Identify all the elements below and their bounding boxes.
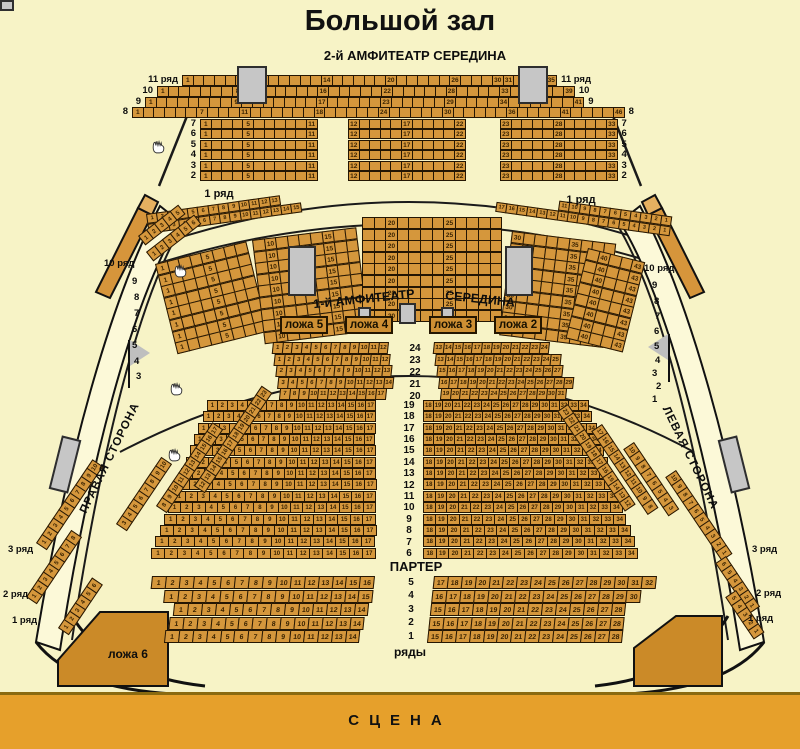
map-label: 5 — [400, 578, 422, 589]
seat[interactable]: 22 — [454, 161, 466, 171]
section-parter-title: ПАРТЕР — [378, 560, 454, 574]
seat[interactable]: 17 — [362, 514, 375, 525]
row-label: 11 ряд — [148, 75, 178, 85]
map-label: 3 ряд — [8, 545, 33, 555]
seat-row: 41511 — [200, 150, 318, 160]
seat-row: 2328337 — [500, 119, 618, 129]
seat-row: 2328332 — [500, 171, 618, 181]
seat-row: 12345678910111213141516 — [151, 576, 376, 589]
seat-row: 1516171819202122232425262728 — [430, 603, 627, 616]
seat[interactable]: 15 — [336, 548, 350, 559]
seat[interactable]: 2 — [173, 525, 187, 536]
seat[interactable]: 14 — [353, 603, 369, 616]
seat[interactable]: 7 — [236, 525, 250, 536]
seat-row: 121722 — [348, 119, 466, 129]
seat[interactable]: 28 — [610, 603, 626, 616]
seat[interactable]: 14 — [323, 536, 337, 547]
seat-row: 121722 — [348, 140, 466, 150]
box-ложа-4[interactable]: ложа 4 — [345, 316, 393, 334]
seat[interactable] — [490, 263, 503, 275]
map-label: 22 — [402, 368, 428, 379]
seat-row: 1819202122232425262728293031323334 — [423, 548, 638, 559]
seat-row: 1234567891011121314151617 — [155, 536, 375, 547]
seat[interactable]: 17 — [365, 411, 376, 422]
page-title: Большой зал — [0, 5, 800, 38]
arc-row1-label-left: 1 ряд — [196, 189, 242, 201]
seat[interactable]: 28 — [547, 536, 560, 547]
seat[interactable]: 26 — [524, 548, 538, 559]
seat[interactable]: 15 — [337, 514, 350, 525]
box-ложа-5[interactable]: ложа 5 — [280, 316, 328, 334]
row-label: 9 — [588, 97, 593, 107]
hand-cursor-icon — [168, 380, 185, 397]
seat[interactable]: 34 — [581, 411, 592, 422]
seat[interactable]: 1 — [155, 536, 169, 547]
map-label: 18 — [398, 412, 420, 423]
seat[interactable]: 10 — [276, 514, 289, 525]
seat-row: 123456789101112 — [272, 342, 389, 354]
seat[interactable]: 7 — [238, 514, 251, 525]
seat[interactable]: 9 — [258, 536, 272, 547]
seat[interactable]: 33 — [606, 119, 618, 129]
seat-row: 121722 — [348, 161, 466, 171]
map-label: 4 — [134, 357, 139, 367]
seat[interactable]: 8 — [243, 548, 257, 559]
seat[interactable]: 33 — [612, 548, 626, 559]
map-label: 4 — [655, 356, 660, 366]
stage-label: СЦЕНА — [348, 712, 451, 749]
seat[interactable]: 28 — [609, 617, 625, 630]
seat[interactable]: 32 — [596, 536, 609, 547]
box-ложа-2[interactable]: ложа 2 — [494, 316, 542, 334]
map-label: 5 — [654, 342, 659, 352]
seat[interactable]: 22 — [454, 129, 466, 139]
seat[interactable]: 25 — [511, 548, 525, 559]
seat-row: 1819202122232425262728293031323334 — [423, 514, 626, 525]
seat-row: 131415161718192021222324 — [433, 342, 550, 354]
seat[interactable]: 27 — [536, 548, 550, 559]
map-label: 4 — [400, 591, 422, 602]
seat[interactable]: 12 — [377, 342, 389, 354]
seat[interactable]: 12 — [296, 548, 310, 559]
seat[interactable]: 17 — [362, 548, 376, 559]
seat-row: 71511 — [200, 119, 318, 129]
map-label: 3 ряд — [752, 545, 777, 555]
map-label: 7 — [398, 538, 420, 549]
map-label: 1 ряд — [748, 614, 773, 624]
row-label: 4 — [191, 150, 196, 160]
map-label: 3 — [652, 369, 657, 379]
map-label: 2 ряд — [3, 590, 28, 600]
seat[interactable]: 13 — [310, 536, 324, 547]
seat[interactable]: 10 — [271, 536, 285, 547]
map-label: 5 — [132, 341, 137, 351]
seat[interactable]: 30 — [626, 590, 642, 603]
seat-row: 1516171819202122232425262728 — [428, 617, 625, 630]
seat[interactable]: 17 — [363, 491, 376, 502]
seat[interactable]: 14 — [325, 514, 338, 525]
seat[interactable]: 3 — [177, 548, 191, 559]
hand-cursor-icon — [166, 446, 183, 463]
seat[interactable]: 20 — [448, 548, 462, 559]
seat[interactable]: 14 — [325, 525, 339, 536]
seat[interactable]: 4 — [198, 525, 212, 536]
map-label: 9 — [398, 515, 420, 526]
seat[interactable]: 14 — [383, 377, 395, 389]
seat[interactable]: 33 — [606, 161, 618, 171]
seat-row: 121722 — [348, 150, 466, 160]
seat[interactable]: 14 — [345, 630, 361, 643]
row-label: 8 — [123, 107, 128, 117]
seat[interactable]: 11 — [306, 161, 318, 171]
map-label: 3 — [400, 605, 422, 616]
section-amph2-title: 2-й АМФИТЕАТР СЕРЕДИНА — [250, 49, 580, 63]
seat[interactable]: 25 — [550, 354, 562, 366]
seat[interactable]: 11 — [306, 171, 318, 181]
seat[interactable]: 18 — [423, 548, 437, 559]
map-label: 1 — [400, 632, 422, 643]
map-label: 8 — [654, 297, 659, 307]
rows-caption: ряды — [380, 646, 440, 659]
seat[interactable]: 8 — [245, 536, 259, 547]
seat[interactable] — [490, 275, 503, 287]
seat[interactable]: 4 — [194, 536, 208, 547]
seat[interactable]: 15 — [338, 525, 352, 536]
flag-pole — [668, 334, 670, 382]
seat[interactable]: 1 — [164, 514, 177, 525]
box-ложа-3[interactable]: ложа 3 — [429, 316, 477, 334]
seat-row: 123456789101112 — [274, 354, 391, 366]
seat[interactable]: 12 — [297, 536, 311, 547]
seat-row: 123456789101112131415 — [163, 590, 374, 603]
seat[interactable]: 15 — [358, 590, 374, 603]
seat[interactable]: 2 — [176, 514, 189, 525]
seat[interactable]: 34 — [613, 514, 626, 525]
seat[interactable]: 25 — [510, 536, 523, 547]
seat-row: 15161718192021222324252627 — [436, 365, 563, 377]
seat[interactable]: 27 — [551, 365, 563, 377]
seat[interactable]: 2 — [164, 548, 178, 559]
map-label: 12 — [398, 481, 420, 492]
seat-row: 2025 — [362, 217, 502, 229]
seat[interactable]: 22 — [454, 140, 466, 150]
seat[interactable]: 3 — [185, 525, 199, 536]
seat[interactable]: 7 — [232, 536, 246, 547]
seat[interactable]: 6 — [219, 536, 233, 547]
seat-row: 2345678910111213 — [275, 365, 392, 377]
seat-row: 1819202122232425262728293031323334 — [423, 457, 608, 468]
seat[interactable]: 31 — [584, 536, 597, 547]
seat[interactable]: 11 — [287, 525, 301, 536]
row-label: 8 — [629, 107, 634, 117]
map-label: 10 ряд — [104, 259, 134, 269]
map-label: 21 — [402, 380, 428, 391]
seat[interactable]: 34 — [625, 548, 639, 559]
seat[interactable]: 32 — [599, 548, 613, 559]
seat[interactable]: 17 — [361, 536, 375, 547]
seat[interactable]: 1 — [151, 548, 165, 559]
seat[interactable]: 17 — [364, 434, 376, 445]
seat-row: 1234567891011121314 — [173, 603, 370, 616]
seat[interactable]: 11 — [306, 150, 318, 160]
seat[interactable]: 11 — [306, 119, 318, 129]
seat-row: 1819202122232425262728293031323334 — [423, 491, 620, 502]
seat[interactable]: 9 — [257, 548, 271, 559]
map-label: 6 — [654, 327, 659, 337]
seat[interactable]: 17 — [364, 479, 377, 490]
seat[interactable]: 28 — [549, 548, 563, 559]
seat[interactable]: 30 — [572, 536, 585, 547]
seat[interactable]: 17 — [364, 423, 375, 434]
row-label: 11 ряд — [561, 75, 591, 85]
seat[interactable]: 13 — [381, 365, 393, 377]
seat[interactable]: 16 — [348, 536, 362, 547]
seat[interactable] — [490, 229, 503, 241]
seat[interactable]: 15 — [290, 202, 303, 213]
seat[interactable]: 33 — [609, 536, 622, 547]
row-label: 2 — [191, 171, 196, 181]
row-label: 10 — [142, 86, 153, 96]
seat[interactable]: 6 — [226, 514, 239, 525]
seat-row: 2025 — [362, 240, 502, 252]
seat-row: 2025 — [362, 229, 502, 241]
seat[interactable]: 28 — [608, 630, 624, 643]
map-label: 6 — [398, 549, 420, 560]
map-label: 16 — [398, 435, 420, 446]
seat[interactable]: 21 — [460, 536, 473, 547]
map-label: 7 — [134, 309, 139, 319]
seat[interactable]: 22 — [454, 171, 466, 181]
seat[interactable]: 17 — [375, 388, 387, 400]
box-lozha-6-label: ложа 6 — [96, 648, 160, 661]
seat[interactable]: 22 — [473, 536, 486, 547]
seat[interactable]: 16 — [359, 576, 375, 589]
seat[interactable]: 5 — [214, 514, 227, 525]
hand-cursor-icon — [172, 262, 189, 279]
seat[interactable]: 32 — [641, 576, 657, 589]
seat-row: 1234567891011121314151617 — [151, 548, 376, 559]
map-label: 1 ряд — [12, 616, 37, 626]
seat[interactable]: 31 — [587, 548, 601, 559]
seat-row: 2025 — [362, 252, 502, 264]
arc-row1-label-right: 1 ряд — [558, 195, 604, 207]
seat[interactable]: 3 — [189, 514, 202, 525]
seat[interactable]: 8 — [249, 525, 263, 536]
seat[interactable]: 5 — [207, 536, 221, 547]
seat[interactable]: 24 — [497, 536, 510, 547]
seat[interactable]: 12 — [300, 525, 314, 536]
map-label: 8 — [398, 526, 420, 537]
seat-row: 1819202122232425262728293031323334 — [423, 525, 631, 536]
seat[interactable]: 17 — [365, 400, 376, 411]
seat[interactable]: 22 — [454, 150, 466, 160]
seat-row: 121722 — [348, 129, 466, 139]
seat[interactable]: 2 — [168, 536, 182, 547]
seat[interactable]: 1 — [160, 525, 174, 536]
map-label: 9 — [652, 281, 657, 291]
seat-row: 61511 — [200, 129, 318, 139]
seat[interactable] — [490, 217, 503, 229]
seat[interactable]: 46 — [613, 107, 625, 118]
seat-row: 1819202122232425262728293031323334 — [423, 479, 616, 490]
seat[interactable]: 19 — [436, 548, 450, 559]
seat[interactable]: 7 — [230, 548, 244, 559]
row-label: 10 — [579, 86, 590, 96]
seat-row: 19202122232425262728293031 — [440, 388, 567, 400]
seat[interactable]: 29 — [559, 536, 572, 547]
seat[interactable]: 12 — [300, 514, 313, 525]
pillar — [505, 246, 533, 296]
seat[interactable]: 5 — [211, 525, 225, 536]
seat[interactable]: 17 — [363, 502, 376, 513]
seat-row: 817111824303641468 — [132, 107, 625, 118]
seat[interactable]: 16 — [350, 514, 363, 525]
map-label: 8 — [134, 293, 139, 303]
seat-row: 1819202122232425262728293031323334 — [423, 502, 623, 513]
seat[interactable]: 26 — [522, 536, 535, 547]
seat-row: 21511 — [200, 171, 318, 181]
map-label: 10 — [398, 503, 420, 514]
seat-row: 1234567891011121314 — [164, 630, 361, 643]
seat[interactable]: 24 — [499, 548, 513, 559]
map-label: 11 — [398, 492, 420, 503]
seat[interactable]: 6 — [223, 525, 237, 536]
seat-row: 2328334 — [500, 150, 618, 160]
seat[interactable]: 13 — [313, 514, 326, 525]
seat[interactable]: 5 — [204, 548, 218, 559]
seat[interactable]: 3 — [181, 536, 195, 547]
seat-row: 7891011121314151617 — [279, 388, 387, 400]
seat[interactable]: 10 — [270, 548, 284, 559]
pillar — [518, 66, 548, 104]
map-label: 9 — [132, 277, 137, 287]
seat[interactable]: 33 — [606, 129, 618, 139]
seat-row: 13141516171819202122232425 — [435, 354, 562, 366]
seat-row: 1516171819202122232425262728 — [427, 630, 624, 643]
seat[interactable]: 34 — [578, 400, 589, 411]
seat[interactable]: 17 — [363, 525, 377, 536]
seat[interactable]: 29 — [562, 548, 576, 559]
seat-row: 1234567891011121314151617 — [203, 411, 376, 422]
seat[interactable]: 18 — [423, 536, 436, 547]
seat[interactable] — [490, 252, 503, 264]
row-label: 4 — [622, 150, 627, 160]
map-label: 3 — [136, 372, 141, 382]
seat[interactable]: 19 — [435, 536, 448, 547]
map-label: 2 — [400, 618, 422, 629]
seat[interactable]: 27 — [535, 536, 548, 547]
seat[interactable]: 23 — [486, 548, 500, 559]
seat-row: 34567891011121314 — [277, 377, 394, 389]
seat[interactable]: 17 — [364, 445, 376, 456]
map-label: 19 — [398, 401, 420, 412]
seat-row: 2328335 — [500, 140, 618, 150]
box-right-corner-shape[interactable] — [634, 616, 722, 686]
seat[interactable]: 29 — [563, 377, 575, 389]
seat-row: 2328333 — [500, 161, 618, 171]
seat[interactable]: 33 — [606, 171, 618, 181]
seat-row: 121722 — [348, 171, 466, 181]
seat[interactable]: 17 — [363, 468, 375, 479]
seat[interactable]: 17 — [364, 457, 376, 468]
map-label: 10 ряд — [644, 264, 674, 274]
seat[interactable]: 9 — [263, 514, 276, 525]
seat-row: 1234567891011121314151617 — [164, 514, 376, 525]
seat[interactable]: 14 — [349, 617, 365, 630]
seat-row: 17181920212223242526272829303132 — [433, 576, 658, 589]
seat[interactable]: 12 — [379, 354, 391, 366]
map-label: 24 — [402, 344, 428, 355]
row-label: 9 — [136, 97, 141, 107]
seat[interactable]: 20 — [448, 536, 461, 547]
row-label: 6 — [622, 129, 627, 139]
seat-row: 2025 — [362, 275, 502, 287]
seat[interactable]: 13 — [309, 548, 323, 559]
row-label: 2 — [622, 171, 627, 181]
seat[interactable]: 11 — [283, 548, 297, 559]
seat[interactable]: 9 — [262, 525, 276, 536]
seat-row: 1234567891011121314151617 — [168, 502, 376, 513]
seat[interactable]: 11 — [288, 514, 301, 525]
seat[interactable]: 8 — [251, 514, 264, 525]
seat-row: 31511 — [200, 161, 318, 171]
seat[interactable]: 21 — [461, 548, 475, 559]
seating-plan: Большой зал СЦЕНА 11 ряд1671420263031351… — [0, 0, 800, 749]
seat[interactable]: 11 — [306, 140, 318, 150]
seat[interactable] — [490, 240, 503, 252]
seat[interactable]: 24 — [538, 342, 550, 354]
seat-row: 161718192021222324252627282930 — [431, 590, 642, 603]
seat-row: 1234567891011121314151617 — [160, 525, 377, 536]
seat[interactable]: 34 — [621, 536, 634, 547]
map-label: 17 — [398, 424, 420, 435]
seat[interactable]: 4 — [191, 548, 205, 559]
seat[interactable]: 31 — [555, 388, 567, 400]
seat[interactable]: 13 — [312, 525, 326, 536]
seat[interactable]: 22 — [473, 548, 487, 559]
map-label: 2 ряд — [756, 589, 781, 599]
seat[interactable]: 34 — [618, 525, 631, 536]
seat-row: 10189162228333910 — [157, 86, 575, 97]
seat[interactable]: 6 — [217, 548, 231, 559]
seat[interactable]: 10 — [274, 525, 288, 536]
seat[interactable]: 33 — [606, 150, 618, 160]
seat-row: 1234567891011121314 — [168, 617, 365, 630]
seat[interactable]: 30 — [574, 548, 588, 559]
seat-row: 1234567891011121314151617 — [207, 400, 376, 411]
seat[interactable]: 33 — [606, 140, 618, 150]
seat-row: 1819202122232425262728293031323334 — [423, 468, 611, 479]
seat[interactable]: 16 — [349, 548, 363, 559]
seat[interactable]: 11 — [306, 129, 318, 139]
map-label: 7 — [655, 312, 660, 322]
seat[interactable]: 14 — [322, 548, 336, 559]
seat[interactable]: 15 — [335, 536, 349, 547]
seat[interactable]: 4 — [201, 514, 214, 525]
seat[interactable]: 39 — [563, 86, 575, 97]
seat[interactable]: 1 — [658, 225, 671, 236]
seat[interactable]: 16 — [350, 525, 364, 536]
pillar — [288, 246, 316, 296]
row-label: 6 — [191, 129, 196, 139]
seat-row: 51511 — [200, 140, 318, 150]
hand-cursor-icon — [150, 138, 167, 155]
seat[interactable]: 11 — [284, 536, 298, 547]
seat-row: 1617181920212223242526272829 — [438, 377, 575, 389]
seat[interactable]: 22 — [454, 119, 466, 129]
map-label: 13 — [398, 469, 420, 480]
seat[interactable]: 23 — [485, 536, 498, 547]
